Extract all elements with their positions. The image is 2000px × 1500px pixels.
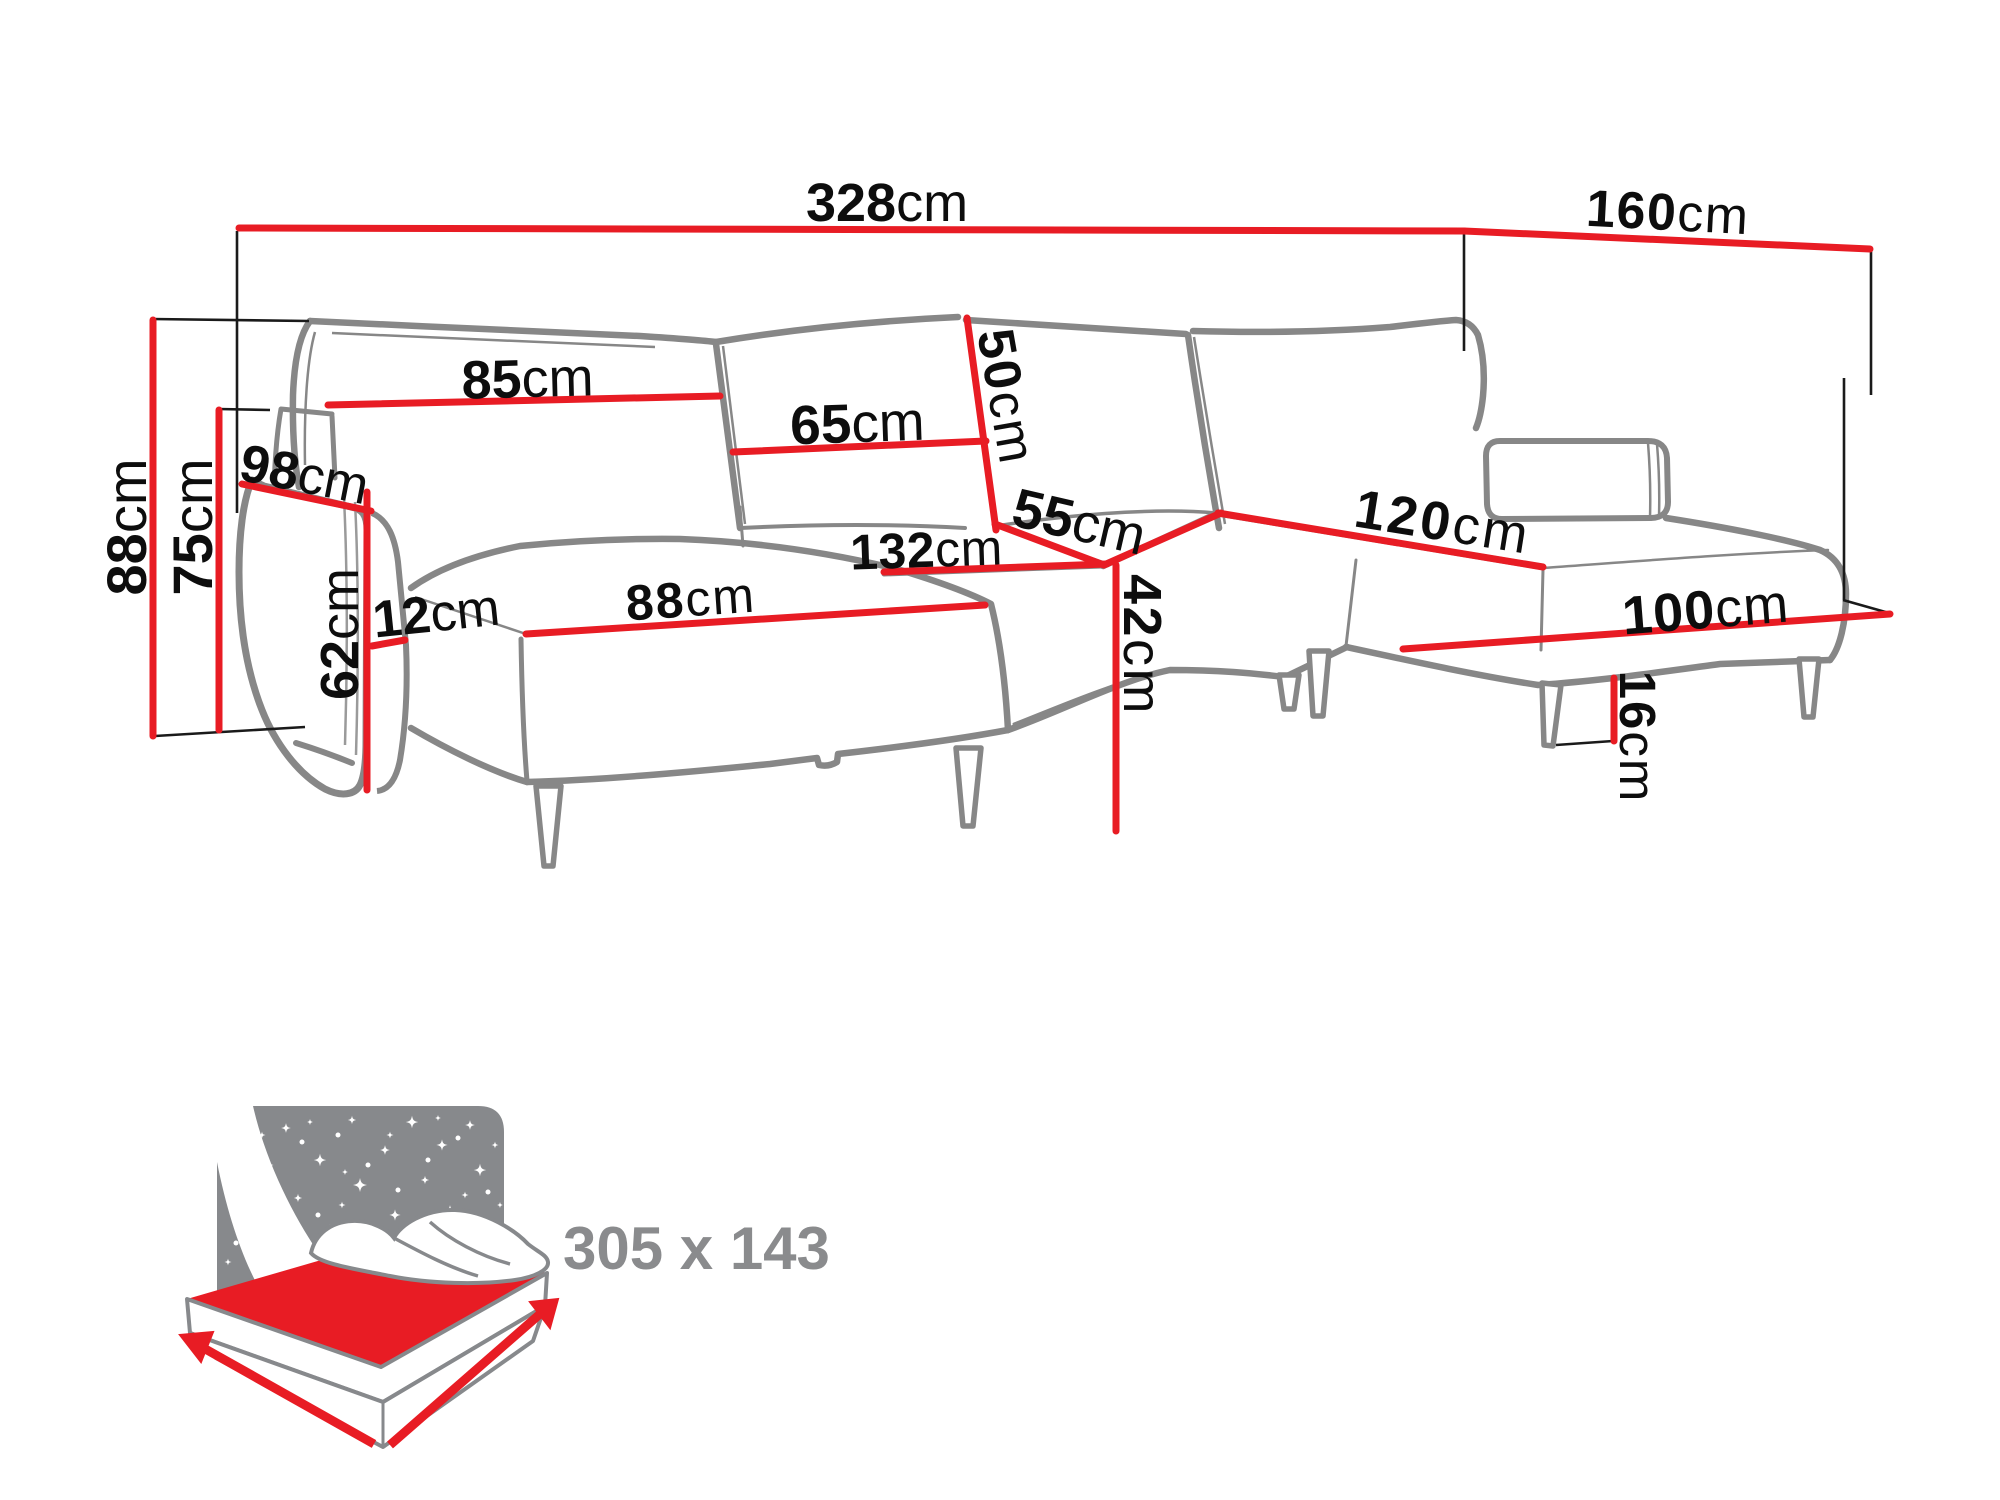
svg-text:75cm: 75cm xyxy=(161,459,224,596)
svg-text:132cm: 132cm xyxy=(849,519,1003,580)
svg-text:85cm: 85cm xyxy=(461,347,595,410)
svg-text:65cm: 65cm xyxy=(789,390,926,457)
svg-text:62cm: 62cm xyxy=(310,568,370,700)
svg-text:160cm: 160cm xyxy=(1585,180,1751,246)
svg-text:16cm: 16cm xyxy=(1609,671,1666,804)
svg-text:88cm: 88cm xyxy=(95,459,158,596)
svg-text:328cm: 328cm xyxy=(806,173,968,233)
svg-text:305 x 143: 305 x 143 xyxy=(563,1215,830,1282)
svg-text:42cm: 42cm xyxy=(1112,574,1172,716)
svg-text:88cm: 88cm xyxy=(624,567,758,632)
